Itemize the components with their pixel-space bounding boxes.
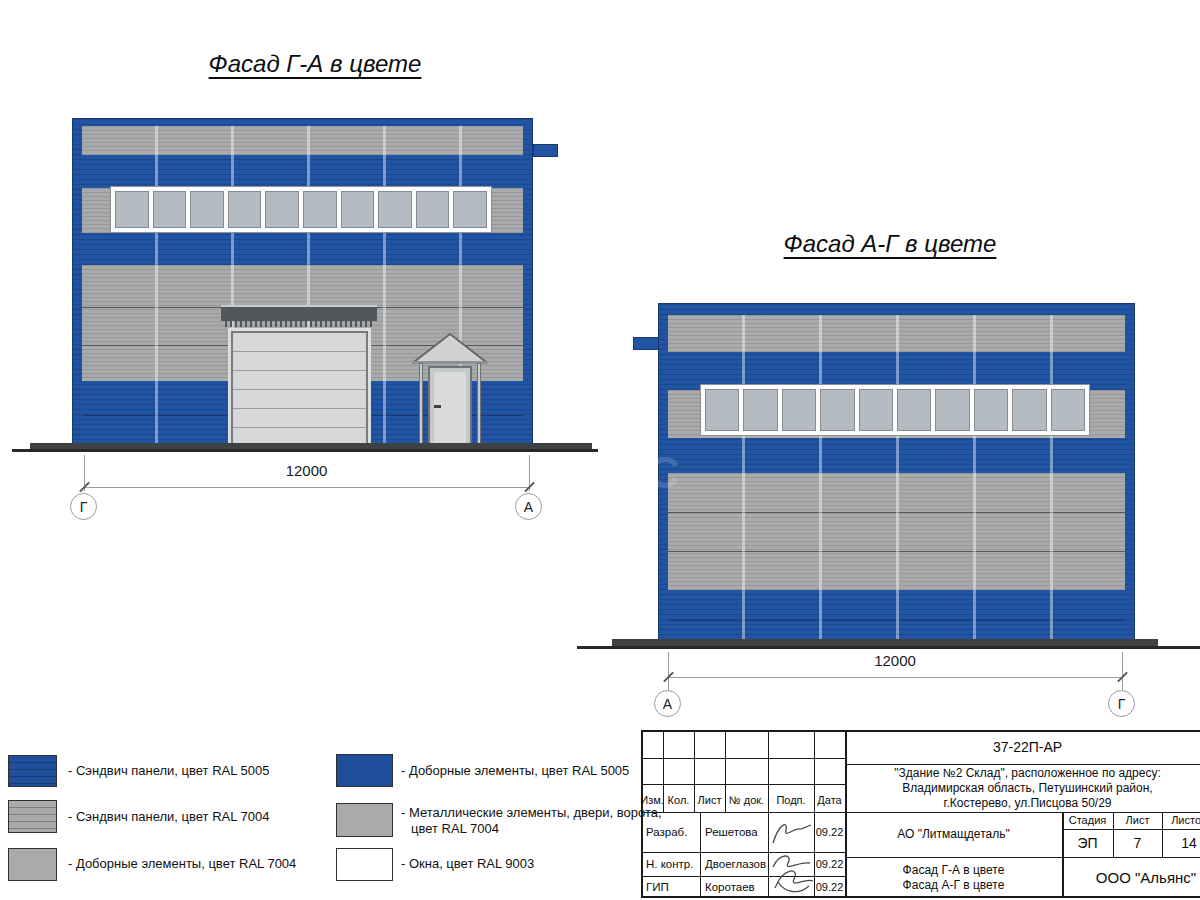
window-pane: [115, 191, 149, 228]
signature: [766, 848, 816, 898]
staff-name: Двоеглазов: [702, 852, 766, 876]
window-pane: [743, 389, 777, 431]
gate-canopy-fringe: [225, 321, 373, 327]
facade-left-window-strip: [110, 186, 492, 233]
sectional-gate: [231, 331, 368, 449]
legend-swatch-sandwich-7004: [8, 800, 57, 833]
window-pane: [265, 191, 299, 228]
legend-swatch-trim-7004: [8, 848, 57, 881]
window-pane: [190, 191, 224, 228]
legend-swatch-trim-5005: [336, 754, 393, 787]
title-block-line: [641, 784, 845, 785]
sheets-value: 14: [1162, 829, 1200, 857]
legend-label: - Доборные элементы, цвет RAL 5005: [401, 763, 671, 779]
window-pane: [153, 191, 187, 228]
staff-date: 09.22: [814, 852, 845, 876]
window-pane: [782, 389, 816, 431]
window-pane: [341, 191, 375, 228]
organization: АО "Литмащдеталь": [845, 812, 1062, 857]
window-pane: [935, 389, 969, 431]
window-pane: [705, 389, 739, 431]
sheet-title: Фасад Г-А в цвете Фасад А-Г в цвете: [845, 857, 1062, 898]
window-pane: [820, 389, 854, 431]
axis-bubble: А: [515, 493, 542, 520]
gutter-outlet: [633, 337, 659, 350]
col-header-list: Лист: [694, 788, 725, 812]
legend-label: - Доборные элементы, цвет RAL 7004: [68, 856, 348, 872]
col-header-data: Дата: [814, 788, 845, 812]
window-pane: [228, 191, 262, 228]
dimension-label: 12000: [244, 462, 369, 479]
watermark: С: [648, 448, 680, 498]
staff-name: Решетова: [702, 812, 766, 852]
sheets-header: Листов: [1162, 812, 1200, 829]
sheet-value: 7: [1113, 829, 1162, 857]
window-pane: [378, 191, 412, 228]
stage-value: ЭП: [1062, 829, 1113, 857]
axis-bubble: Г: [70, 493, 97, 520]
window-pane: [859, 389, 893, 431]
col-header-izm: Изм.: [641, 788, 663, 812]
ground-line: [577, 646, 1200, 649]
dimension-line: [84, 487, 530, 488]
col-header-kol: Кол.: [663, 788, 694, 812]
staff-role: ГИП: [643, 876, 699, 898]
staff-name: Коротаев: [702, 876, 766, 898]
staff-date: 09.22: [814, 812, 845, 852]
axis-bubble: А: [654, 690, 681, 717]
extension-line: [668, 652, 669, 690]
staff-role: Разраб.: [643, 812, 699, 852]
staff-role: Н. контр.: [643, 852, 699, 876]
door-handle: [434, 405, 441, 408]
panel-vertical-joints: [668, 315, 1125, 648]
title-block-line: [700, 812, 701, 898]
window-pane: [303, 191, 337, 228]
facade-right-title: Фасад А-Г в цвете: [720, 230, 1060, 258]
company: ООО "Альянс": [1062, 857, 1200, 898]
facade-right-window-strip: [700, 384, 1090, 436]
extension-line: [1122, 652, 1123, 690]
staff-date: 09.22: [814, 876, 845, 898]
dimension-label: 12000: [835, 652, 955, 669]
legend-swatch-sandwich-5005: [8, 755, 57, 787]
doc-code: 37-22П-АР: [845, 730, 1200, 764]
ground-line: [12, 449, 598, 452]
window-pane: [897, 389, 931, 431]
canopy-post: [477, 363, 481, 448]
sheet-header: Лист: [1113, 812, 1162, 829]
legend-label: - Сэндвич панели, цвет RAL 5005: [68, 763, 328, 779]
window-pane: [974, 389, 1008, 431]
gate-canopy: [221, 305, 377, 321]
title-block-line: [641, 758, 845, 759]
legend-label: - Окна, цвет RAL 9003: [401, 856, 661, 872]
canopy-post: [419, 363, 423, 448]
window-pane: [1012, 389, 1046, 431]
col-header-ndok: № док.: [725, 788, 768, 812]
window-pane: [1051, 389, 1085, 431]
legend-label: - Сэндвич панели, цвет RAL 7004: [68, 809, 328, 825]
col-header-podp: Подп.: [768, 788, 814, 812]
axis-bubble: Г: [1108, 690, 1135, 717]
gutter-outlet: [533, 144, 558, 157]
legend-swatch-windows-9003: [336, 848, 393, 881]
dimension-line: [668, 677, 1123, 678]
window-pane: [416, 191, 450, 228]
facade-left-title: Фасад Г-А в цвете: [150, 50, 480, 78]
stage-header: Стадия: [1062, 812, 1113, 829]
object-address: "Здание №2 Склад", расположенное по адре…: [845, 764, 1200, 812]
drawing-sheet: Фасад Г-А в цвете 12000 Г А Фасад А-Г в …: [0, 0, 1200, 900]
window-pane: [453, 191, 487, 228]
signature: [768, 816, 814, 850]
legend-swatch-metal-7004: [336, 803, 393, 837]
